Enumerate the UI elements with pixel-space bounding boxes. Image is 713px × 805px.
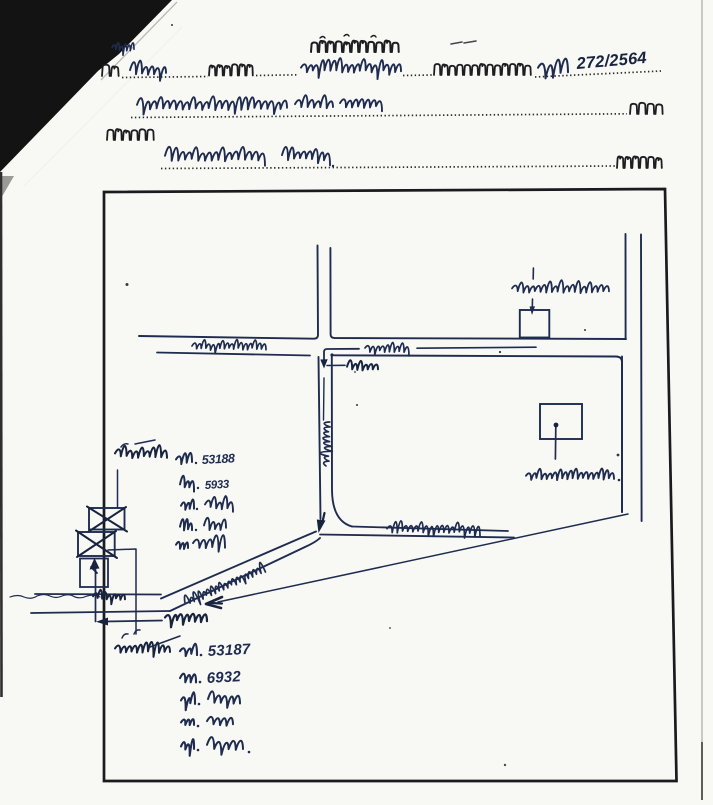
svg-text:53188: 53188 (201, 451, 235, 467)
svg-text:5933: 5933 (205, 479, 231, 492)
svg-text:6932: 6932 (206, 668, 241, 687)
svg-text:53187: 53187 (207, 641, 251, 660)
